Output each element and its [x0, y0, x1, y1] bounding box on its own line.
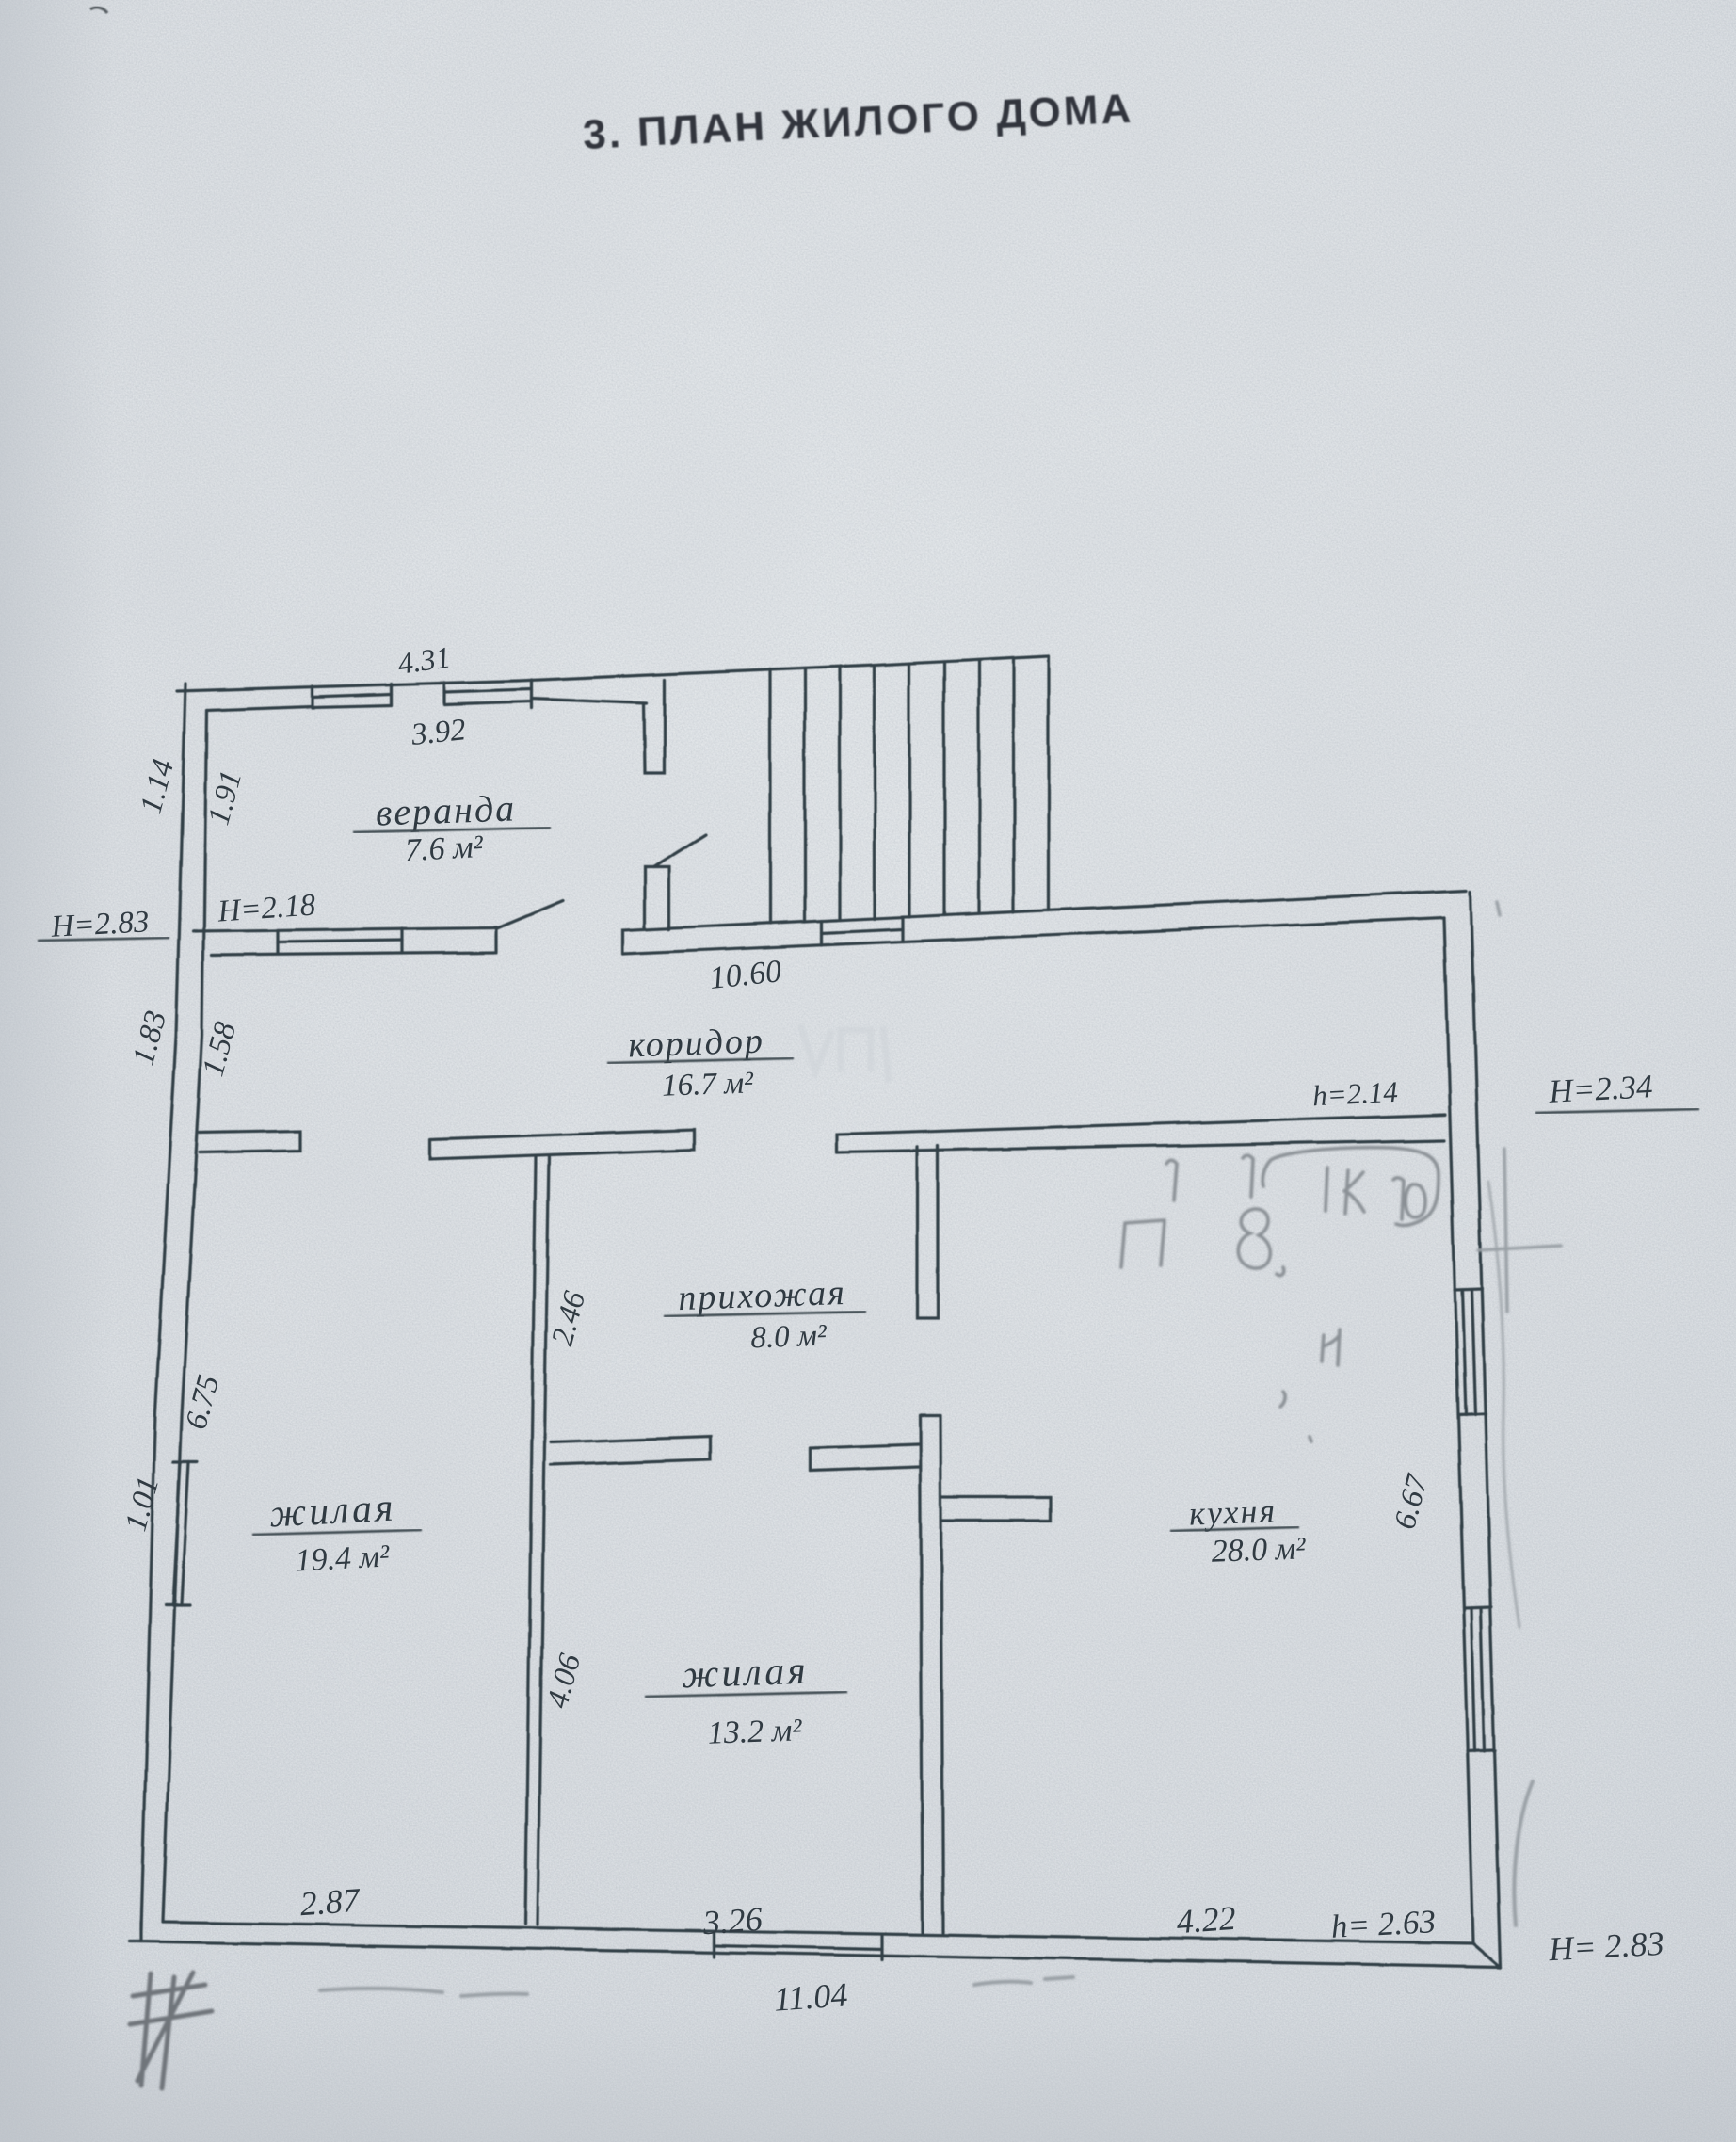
svg-text:h= 2.63: h= 2.63 [1330, 1903, 1437, 1945]
svg-text:7.6 м²: 7.6 м² [404, 829, 485, 868]
svg-text:16.7 м²: 16.7 м² [662, 1066, 755, 1103]
svg-text:h=2.14: h=2.14 [1311, 1075, 1398, 1113]
svg-text:2.87: 2.87 [298, 1881, 362, 1923]
svg-text:13.2 м²: 13.2 м² [707, 1713, 803, 1750]
svg-text:веранда: веранда [375, 786, 517, 833]
svg-text:жилая: жилая [268, 1487, 397, 1537]
svg-text:Н= 2.83: Н= 2.83 [1547, 1925, 1664, 1968]
svg-text:кухня: кухня [1188, 1491, 1277, 1532]
svg-text:жилая: жилая [682, 1650, 810, 1698]
svg-text:Н=2.18: Н=2.18 [216, 888, 317, 928]
svg-text:3.26: 3.26 [700, 1900, 764, 1941]
svg-text:Н=2.34: Н=2.34 [1547, 1068, 1653, 1110]
svg-text:3.92: 3.92 [409, 713, 467, 752]
svg-text:28.0 м²: 28.0 м² [1211, 1531, 1307, 1569]
svg-text:8.0 м²: 8.0 м² [750, 1319, 828, 1356]
svg-text:19.4 м²: 19.4 м² [295, 1538, 391, 1578]
svg-text:4.22: 4.22 [1175, 1899, 1237, 1941]
svg-text:11.04: 11.04 [773, 1975, 849, 2018]
